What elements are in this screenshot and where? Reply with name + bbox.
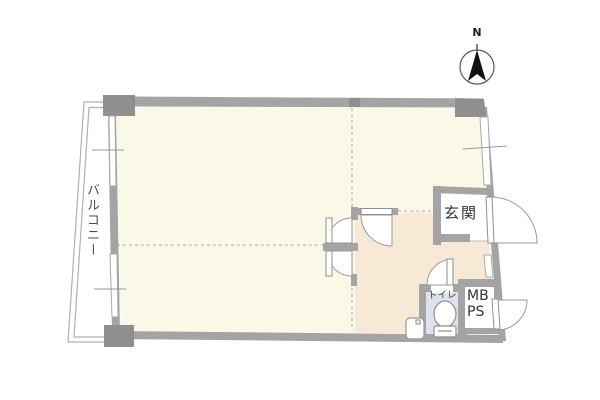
window-left-lower: [110, 254, 118, 317]
hallway-top-door-leaf: [361, 209, 392, 215]
entrance-door-leaf: [486, 197, 494, 243]
mb-door-leaf: [492, 299, 500, 329]
pipe-space-label: PS: [467, 305, 484, 319]
entrance-label: 玄関: [444, 206, 478, 221]
floorplan-canvas: N バルコニー 玄関 トイレ MB PS: [0, 0, 600, 400]
window-left-upper: [109, 116, 116, 186]
west-upper-door-leaf: [326, 218, 332, 243]
balcony-label: バルコニー: [82, 183, 98, 293]
meter-box-label: MB: [467, 289, 489, 303]
toilet-label: トイレ: [428, 291, 457, 301]
washbasin-icon: [406, 318, 424, 339]
window-right-vent: [484, 255, 493, 277]
entrance-door-swing: [490, 197, 537, 243]
north-label: N: [470, 27, 484, 38]
toilet-door-leaf: [447, 259, 453, 285]
north-compass-icon: [460, 44, 494, 84]
west-lower-door-leaf: [326, 251, 332, 276]
toilet-icon: [434, 301, 456, 337]
mb-door-swing: [497, 300, 527, 330]
